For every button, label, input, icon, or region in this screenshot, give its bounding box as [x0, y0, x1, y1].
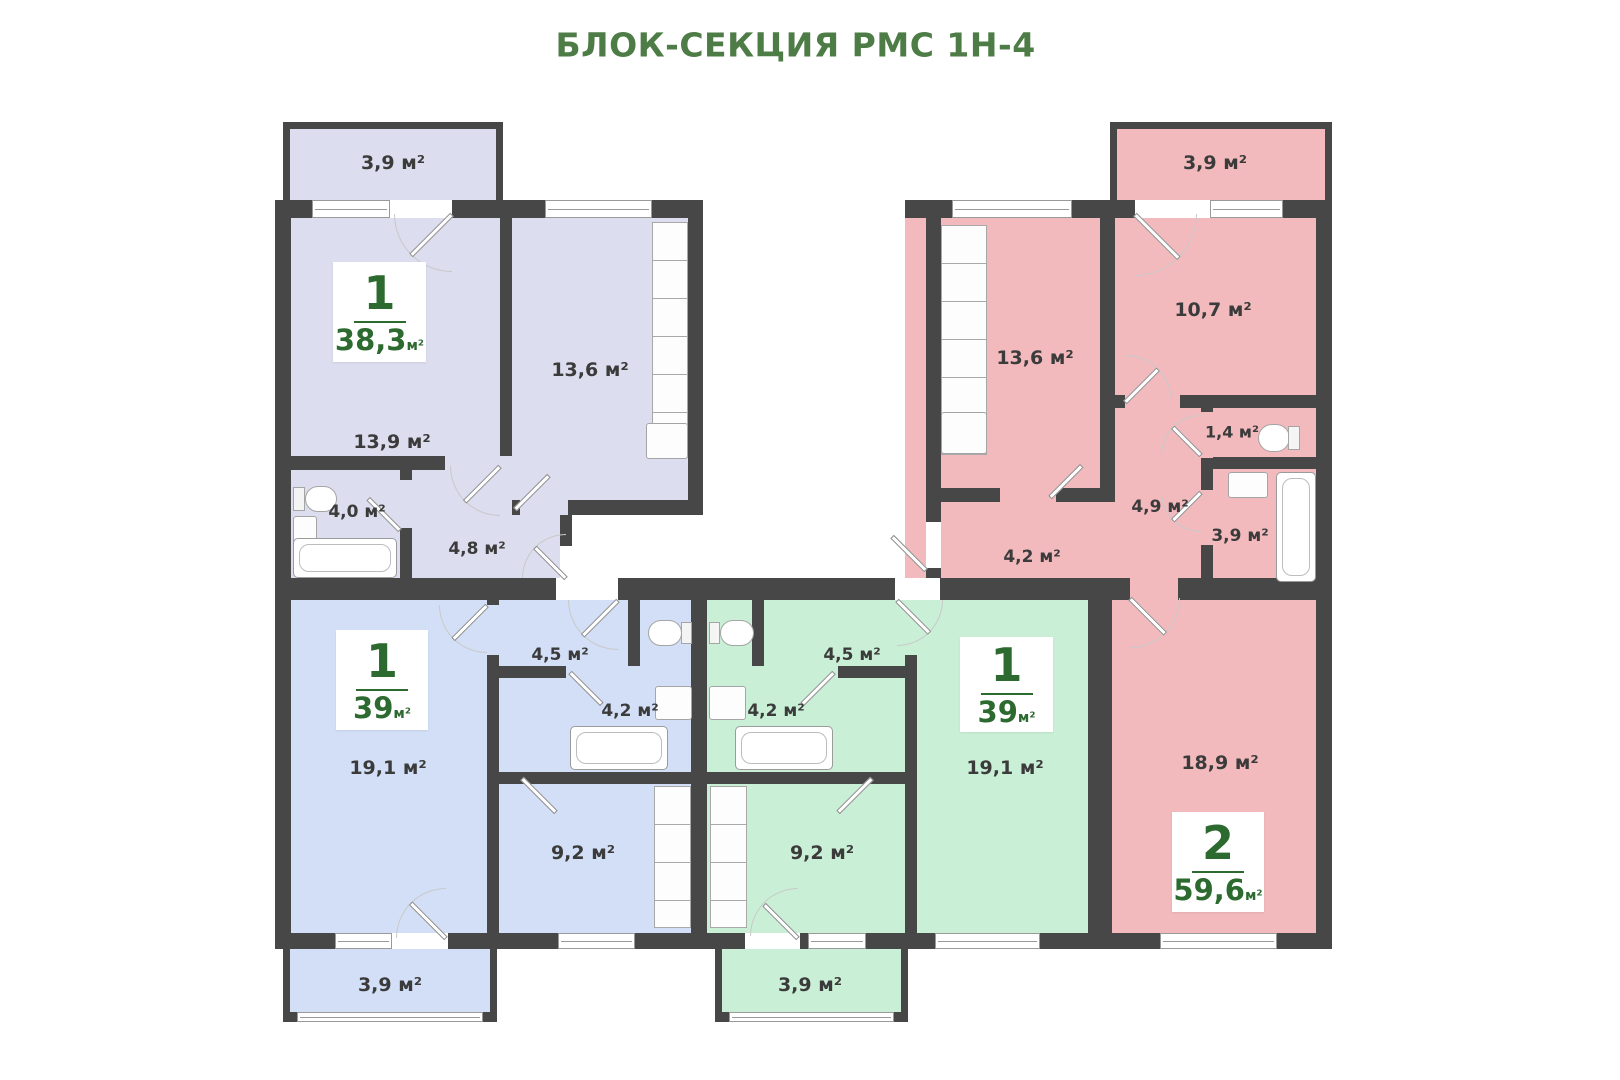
door-opening — [520, 500, 568, 515]
area-label-tl-room: 13,9 м² — [353, 431, 430, 453]
bathtub — [735, 726, 833, 770]
area-label-tl-kitchen: 13,6 м² — [551, 359, 628, 381]
area-label-tl-balcony: 3,9 м² — [361, 152, 425, 174]
sink — [655, 686, 692, 720]
area-label-bl-bathroom: 4,2 м² — [601, 701, 658, 721]
apartment-badge-bottom-middle: 1 39м² — [960, 637, 1053, 732]
area-label-pk-balcony: 3,9 м² — [1183, 152, 1247, 174]
wall-segment — [1325, 122, 1332, 206]
wall-segment — [892, 1012, 908, 1022]
area-label-pk-hallway: 4,9 м² — [1131, 497, 1188, 517]
area-label-pk-living: 18,9 м² — [1181, 752, 1258, 774]
wall-segment — [1213, 457, 1316, 469]
area-label-bl-balcony: 3,9 м² — [358, 974, 422, 996]
door-opening — [487, 605, 499, 655]
balcony-glazing — [729, 1012, 894, 1022]
apartment-badge-bottom-left: 1 39м² — [336, 630, 428, 730]
apartment-badge-top-right: 2 59,6м² — [1172, 812, 1264, 912]
window — [935, 933, 1040, 949]
wall-segment — [1100, 218, 1115, 502]
wall-segment — [500, 218, 512, 456]
badge-area: 39м² — [353, 694, 411, 723]
area-label-pk-wc: 1,4 м² — [1205, 423, 1259, 442]
area-label-gm-living: 19,1 м² — [966, 757, 1043, 779]
badge-area: 38,3м² — [335, 326, 424, 355]
area-label-bl-kitchen: 9,2 м² — [551, 842, 615, 864]
toilet — [720, 620, 754, 646]
kitchen-sink — [646, 423, 688, 459]
wall-segment — [838, 666, 905, 678]
wall-segment — [628, 600, 640, 666]
stairwell-cutout — [572, 515, 703, 578]
wall-segment — [1110, 122, 1332, 129]
bathtub — [570, 726, 668, 770]
window — [1160, 933, 1277, 949]
area-label-pk-bedroom: 10,7 м² — [1174, 299, 1251, 321]
wall-segment — [291, 456, 445, 470]
bathtub — [293, 538, 397, 578]
wall-segment — [499, 666, 566, 678]
balcony-glazing — [297, 1012, 483, 1022]
badge-room-count: 1 — [366, 638, 398, 684]
badge-room-count: 1 — [363, 270, 395, 316]
badge-area: 59,6м² — [1173, 876, 1262, 905]
window — [558, 933, 635, 949]
wall-segment — [1088, 598, 1112, 933]
page-title: БЛОК-СЕКЦИЯ РМС 1Н-4 — [556, 26, 1036, 65]
area-label-tl-bathroom: 4,0 м² — [328, 502, 385, 522]
area-label-gm-bathroom: 4,2 м² — [747, 701, 804, 721]
wall-segment — [688, 200, 703, 515]
door-opening — [926, 522, 941, 568]
door-opening — [1130, 578, 1178, 600]
apartment-badge-top-left: 1 38,3м² — [333, 262, 426, 362]
window — [952, 200, 1072, 218]
badge-area: 39м² — [978, 698, 1036, 727]
door-opening — [400, 480, 412, 528]
wall-segment — [283, 122, 290, 206]
wall-segment — [496, 122, 503, 206]
window — [335, 933, 392, 949]
wall-segment — [691, 600, 707, 933]
area-label-bl-hallway: 4,5 м² — [531, 645, 588, 665]
area-label-gm-balcony: 3,9 м² — [778, 974, 842, 996]
wall-segment — [283, 122, 503, 129]
wall-segment — [275, 200, 291, 949]
kitchen-counter — [710, 786, 747, 928]
area-label-pk-kitchen: 13,6 м² — [996, 347, 1073, 369]
window — [1210, 200, 1283, 218]
area-label-gm-kitchen: 9,2 м² — [790, 842, 854, 864]
wall-segment — [707, 772, 905, 784]
area-label-tl-hallway: 4,8 м² — [448, 539, 505, 559]
area-label-pk-corridor: 4,2 м² — [1003, 547, 1060, 567]
kitchen-sink — [941, 412, 987, 454]
toilet — [293, 487, 305, 511]
toilet — [681, 622, 692, 644]
window — [808, 933, 866, 949]
kitchen-counter — [654, 786, 691, 928]
window — [312, 200, 390, 218]
wall-segment — [1316, 200, 1332, 949]
area-label-bl-living: 19,1 м² — [349, 757, 426, 779]
bathtub — [1276, 472, 1316, 582]
door-opening — [556, 578, 618, 600]
area-label-pk-bathroom: 3,9 м² — [1211, 526, 1268, 546]
badge-room-count: 1 — [990, 642, 1022, 688]
floor-plan: БЛОК-СЕКЦИЯ РМС 1Н-4 — [0, 0, 1620, 1080]
toilet — [1258, 424, 1290, 452]
window — [545, 200, 652, 218]
toilet — [648, 620, 682, 646]
toilet — [709, 622, 720, 644]
sink — [709, 686, 746, 720]
sink — [1228, 472, 1268, 498]
area-label-gm-hallway: 4,5 м² — [823, 645, 880, 665]
badge-room-count: 2 — [1202, 820, 1234, 866]
door-opening — [895, 578, 940, 600]
wall-segment — [1110, 122, 1117, 206]
wall-segment — [481, 1012, 497, 1022]
wall-segment — [905, 655, 917, 933]
toilet — [1288, 426, 1300, 450]
